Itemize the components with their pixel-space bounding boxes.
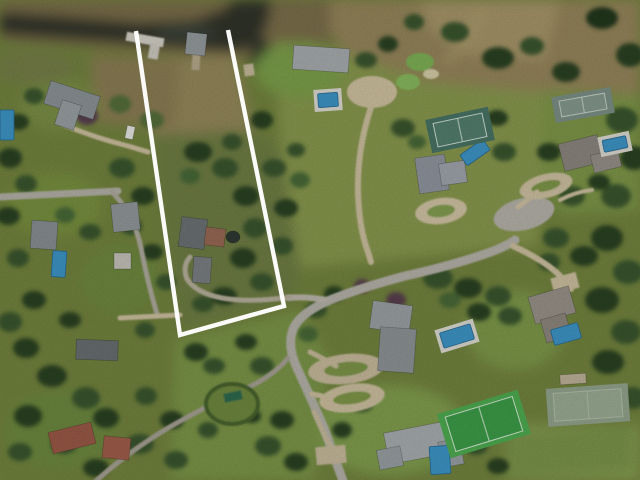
aerial-photo-figure (0, 0, 640, 480)
aerial-satellite-photo (0, 0, 640, 480)
photo-grain-overlay (0, 0, 640, 480)
